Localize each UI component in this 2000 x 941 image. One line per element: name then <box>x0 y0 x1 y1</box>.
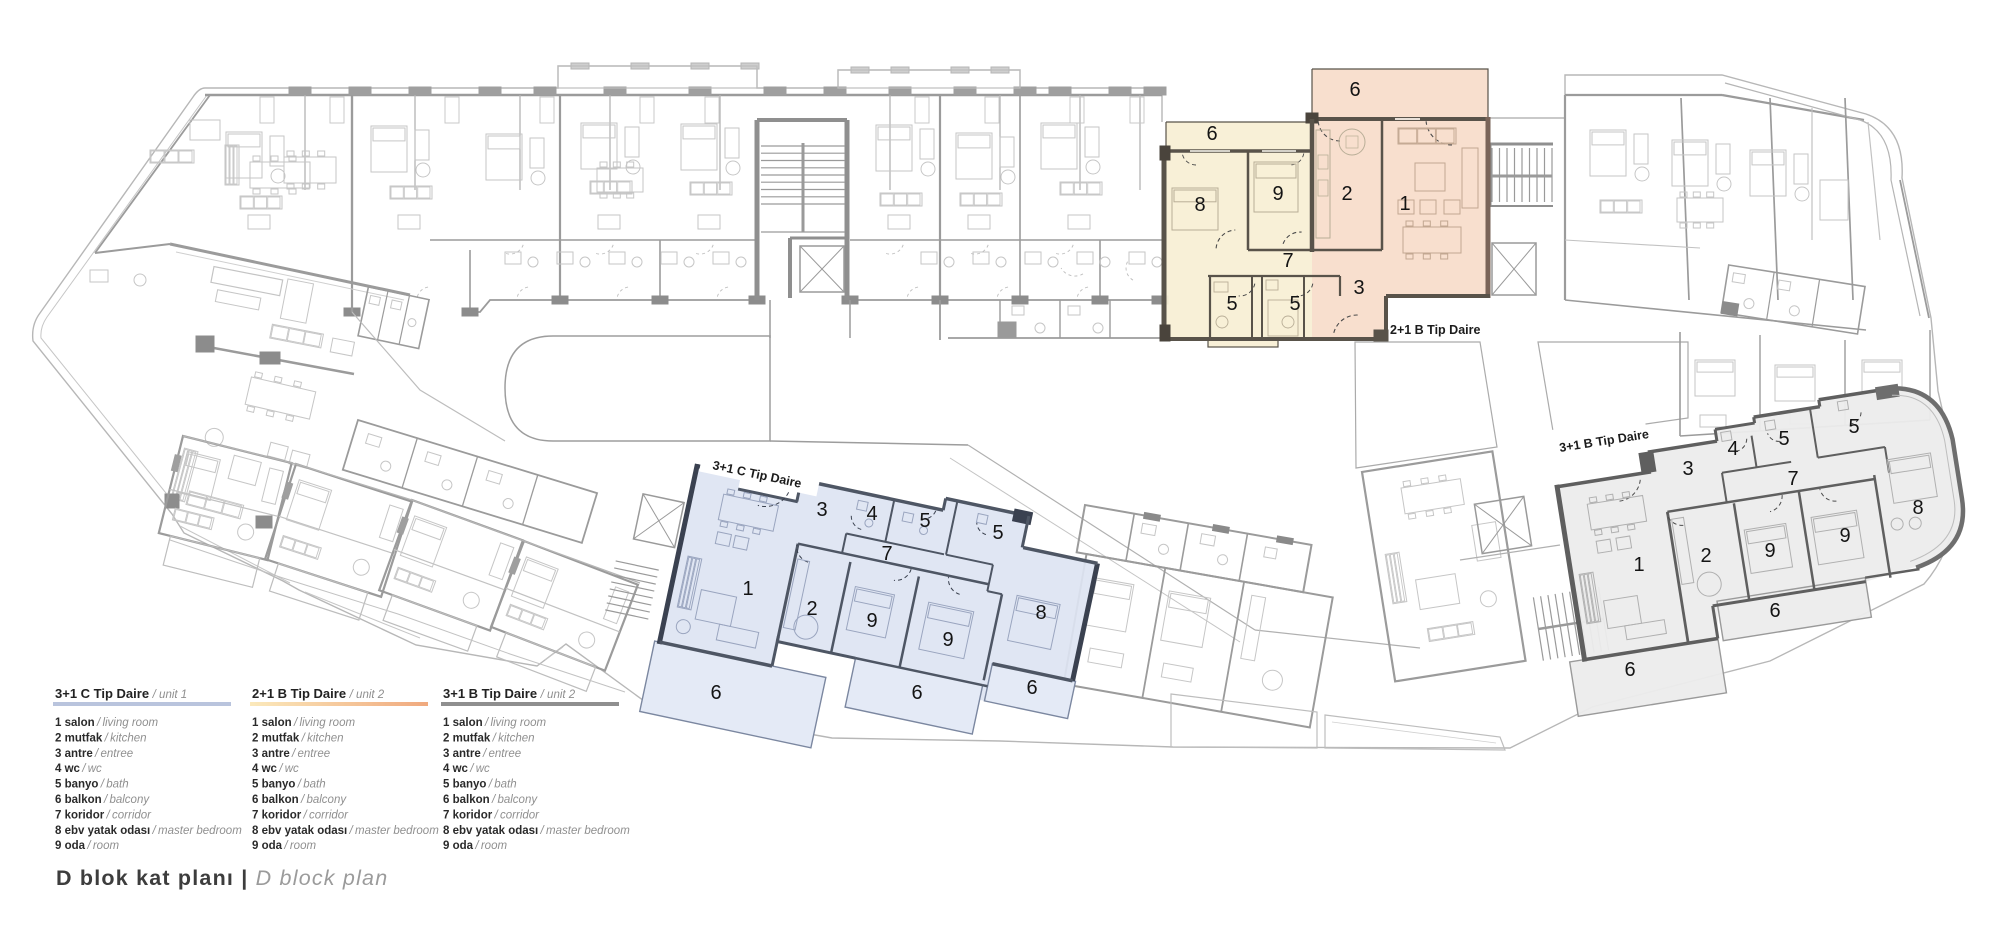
svg-text:9 oda / room: 9 oda / room <box>443 840 507 852</box>
svg-text:6 balkon / balcony: 6 balkon / balcony <box>443 794 538 806</box>
svg-text:3 antre / entree: 3 antre / entree <box>252 748 330 760</box>
svg-text:5: 5 <box>992 522 1003 544</box>
svg-text:6: 6 <box>1026 677 1037 699</box>
svg-text:7: 7 <box>1787 468 1798 490</box>
svg-text:5 banyo / bath: 5 banyo / bath <box>443 779 517 791</box>
svg-text:3: 3 <box>816 499 827 521</box>
svg-text:6 balkon / balcony: 6 balkon / balcony <box>252 794 347 806</box>
svg-text:6: 6 <box>1349 79 1360 101</box>
svg-text:1 salon / living room: 1 salon / living room <box>252 717 355 729</box>
svg-text:4 wc / wc: 4 wc / wc <box>252 763 299 775</box>
svg-text:3: 3 <box>1682 458 1693 480</box>
svg-text:7: 7 <box>1282 250 1293 272</box>
svg-text:5: 5 <box>919 510 930 532</box>
svg-text:8 ebv yatak odası / master bed: 8 ebv yatak odası / master bedroom <box>443 825 630 837</box>
svg-text:5: 5 <box>1778 428 1789 450</box>
svg-text:5: 5 <box>1848 416 1859 438</box>
svg-text:9 oda / room: 9 oda / room <box>55 840 119 852</box>
svg-text:7 koridor / corridor: 7 koridor / corridor <box>252 809 349 821</box>
svg-text:9 oda / room: 9 oda / room <box>252 840 316 852</box>
svg-text:2 mutfak / kitchen: 2 mutfak / kitchen <box>443 732 535 744</box>
svg-text:4: 4 <box>1727 438 1738 460</box>
svg-text:3+1 C Tip Daire / unit 1: 3+1 C Tip Daire / unit 1 <box>55 686 187 701</box>
svg-text:D blok kat planı | D block pla: D blok kat planı | D block plan <box>56 866 388 890</box>
svg-text:3 antre / entree: 3 antre / entree <box>55 748 133 760</box>
svg-text:5 banyo / bath: 5 banyo / bath <box>55 779 129 791</box>
svg-text:4 wc / wc: 4 wc / wc <box>443 763 490 775</box>
svg-text:4: 4 <box>866 503 877 525</box>
svg-text:7: 7 <box>881 543 892 565</box>
svg-text:8 ebv yatak odası / master bed: 8 ebv yatak odası / master bedroom <box>252 825 439 837</box>
svg-text:8: 8 <box>1194 194 1205 216</box>
svg-text:9: 9 <box>1839 525 1850 547</box>
svg-text:9: 9 <box>866 610 877 632</box>
svg-text:1 salon / living room: 1 salon / living room <box>55 717 158 729</box>
svg-text:2+1 B Tip Daire: 2+1 B Tip Daire <box>1390 323 1480 337</box>
svg-text:8: 8 <box>1912 497 1923 519</box>
svg-text:2+1 B Tip Daire / unit 2: 2+1 B Tip Daire / unit 2 <box>252 686 385 701</box>
svg-text:2: 2 <box>1700 545 1711 567</box>
svg-text:5: 5 <box>1226 293 1237 315</box>
svg-text:6 balkon / balcony: 6 balkon / balcony <box>55 794 150 806</box>
svg-text:9: 9 <box>1272 183 1283 205</box>
svg-text:8 ebv yatak odası / master bed: 8 ebv yatak odası / master bedroom <box>55 825 242 837</box>
svg-text:9: 9 <box>1764 540 1775 562</box>
svg-text:2 mutfak / kitchen: 2 mutfak / kitchen <box>252 732 344 744</box>
svg-text:1 salon / living room: 1 salon / living room <box>443 717 546 729</box>
svg-text:1: 1 <box>1633 554 1644 576</box>
svg-text:1: 1 <box>1399 193 1410 215</box>
svg-text:6: 6 <box>710 682 721 704</box>
svg-text:7 koridor / corridor: 7 koridor / corridor <box>55 809 152 821</box>
svg-text:2: 2 <box>1341 183 1352 205</box>
svg-text:3: 3 <box>1353 277 1364 299</box>
svg-text:5 banyo / bath: 5 banyo / bath <box>252 779 326 791</box>
svg-text:9: 9 <box>942 629 953 651</box>
svg-text:6: 6 <box>911 682 922 704</box>
svg-text:5: 5 <box>1289 293 1300 315</box>
svg-text:6: 6 <box>1769 600 1780 622</box>
svg-text:2: 2 <box>806 598 817 620</box>
svg-text:2 mutfak / kitchen: 2 mutfak / kitchen <box>55 732 147 744</box>
svg-text:6: 6 <box>1206 123 1217 145</box>
svg-text:3 antre / entree: 3 antre / entree <box>443 748 521 760</box>
svg-text:6: 6 <box>1624 659 1635 681</box>
svg-text:1: 1 <box>742 578 753 600</box>
svg-text:3+1 B Tip Daire / unit 2: 3+1 B Tip Daire / unit 2 <box>443 686 576 701</box>
svg-text:4 wc / wc: 4 wc / wc <box>55 763 102 775</box>
svg-text:8: 8 <box>1035 602 1046 624</box>
svg-text:7 koridor / corridor: 7 koridor / corridor <box>443 809 540 821</box>
